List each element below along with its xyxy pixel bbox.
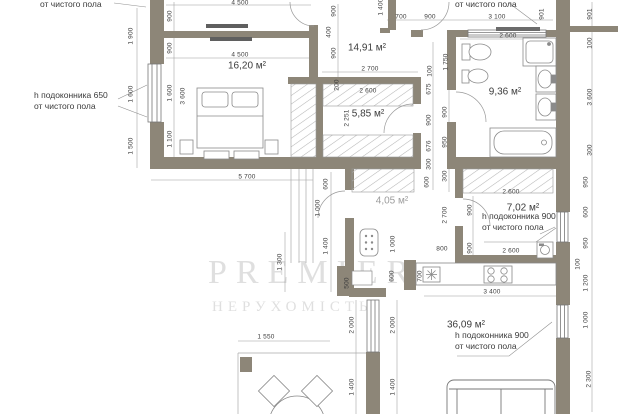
room-label-layer: 16,20 м²14,91 м²5,85 м²9,36 м²4,05 м²7,0… — [0, 0, 620, 414]
room-area-label-wardrobe-5-85: 5,85 м² — [352, 109, 384, 120]
room-area-label-hallway: 4,05 м² — [376, 196, 408, 207]
room-area-label-living-kitchen: 36,09 м² — [447, 320, 485, 331]
room-area-label-room-14-91: 14,91 м² — [348, 43, 386, 54]
room-area-label-bedroom: 16,20 м² — [228, 61, 266, 72]
room-area-label-closet-7-02: 7,02 м² — [507, 203, 539, 214]
floor-plan: PREMIER НЕРУХОМІСТЬ — [0, 0, 620, 414]
room-area-label-bathroom: 9,36 м² — [489, 87, 521, 98]
